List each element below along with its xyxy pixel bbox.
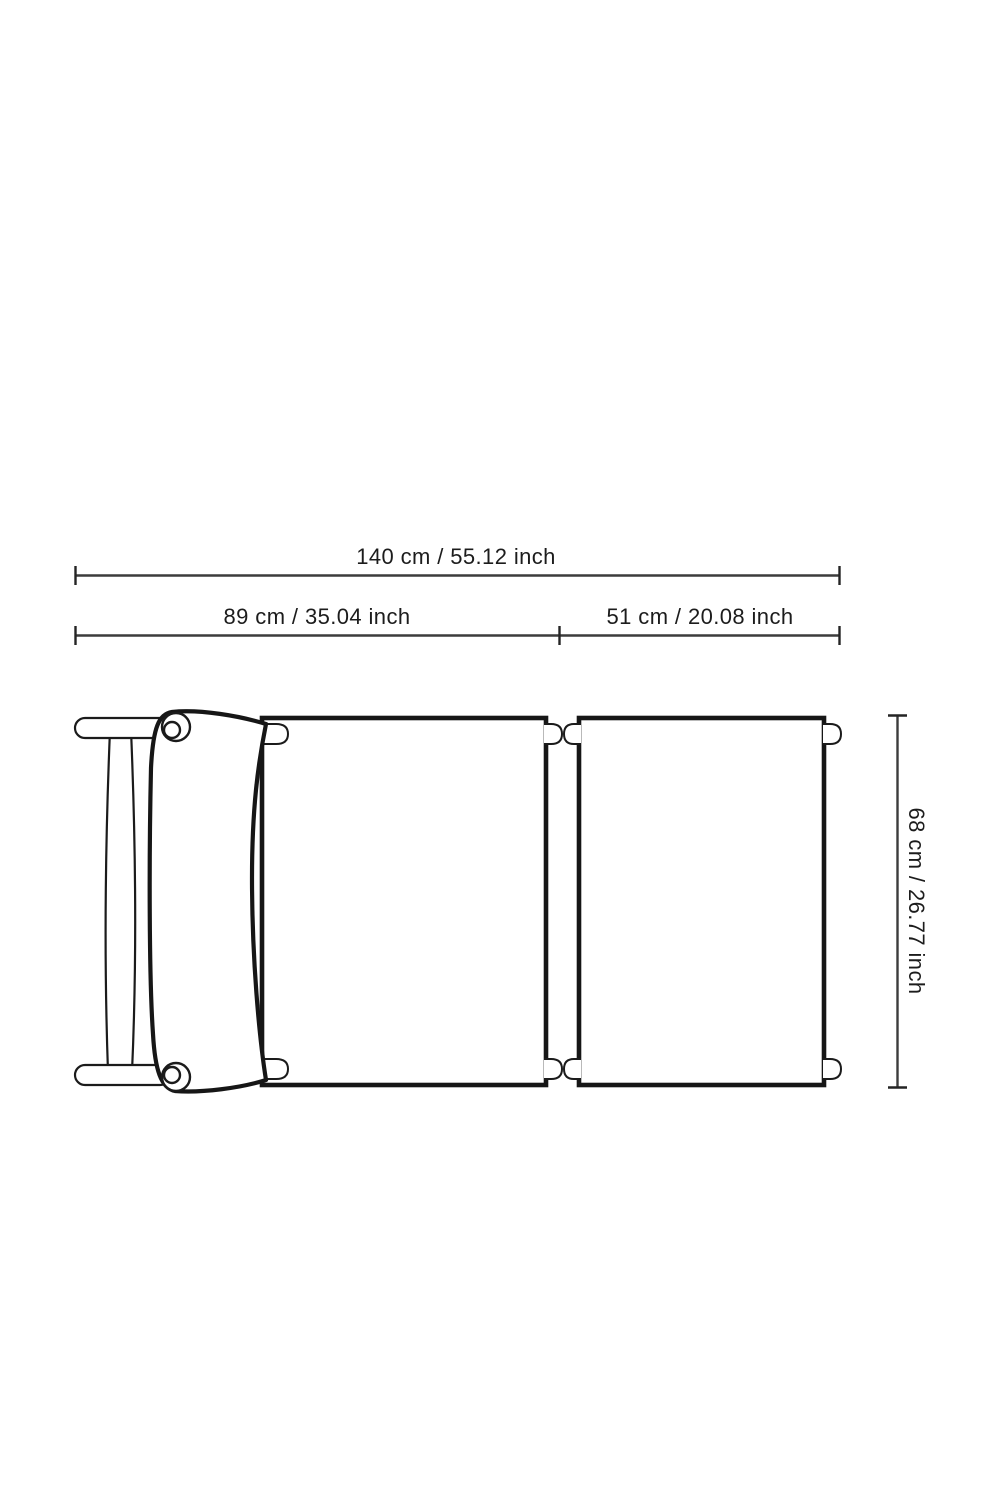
dimension-label-depth: 68 cm / 26.77 inch — [904, 808, 928, 995]
dimension-label-right-section: 51 cm / 20.08 inch — [607, 605, 794, 629]
diagram-line-art — [0, 0, 1000, 1500]
seat-section-outline — [262, 718, 546, 1085]
dimension-diagram: 140 cm / 55.12 inch 89 cm / 35.04 inch 5… — [0, 0, 1000, 1500]
extension-section-outline — [579, 718, 824, 1085]
dimension-label-left-section: 89 cm / 35.04 inch — [224, 605, 411, 629]
dimension-label-total-width: 140 cm / 55.12 inch — [356, 545, 556, 569]
backrest-frame-rails — [106, 730, 136, 1072]
canvas-sling — [150, 711, 266, 1091]
